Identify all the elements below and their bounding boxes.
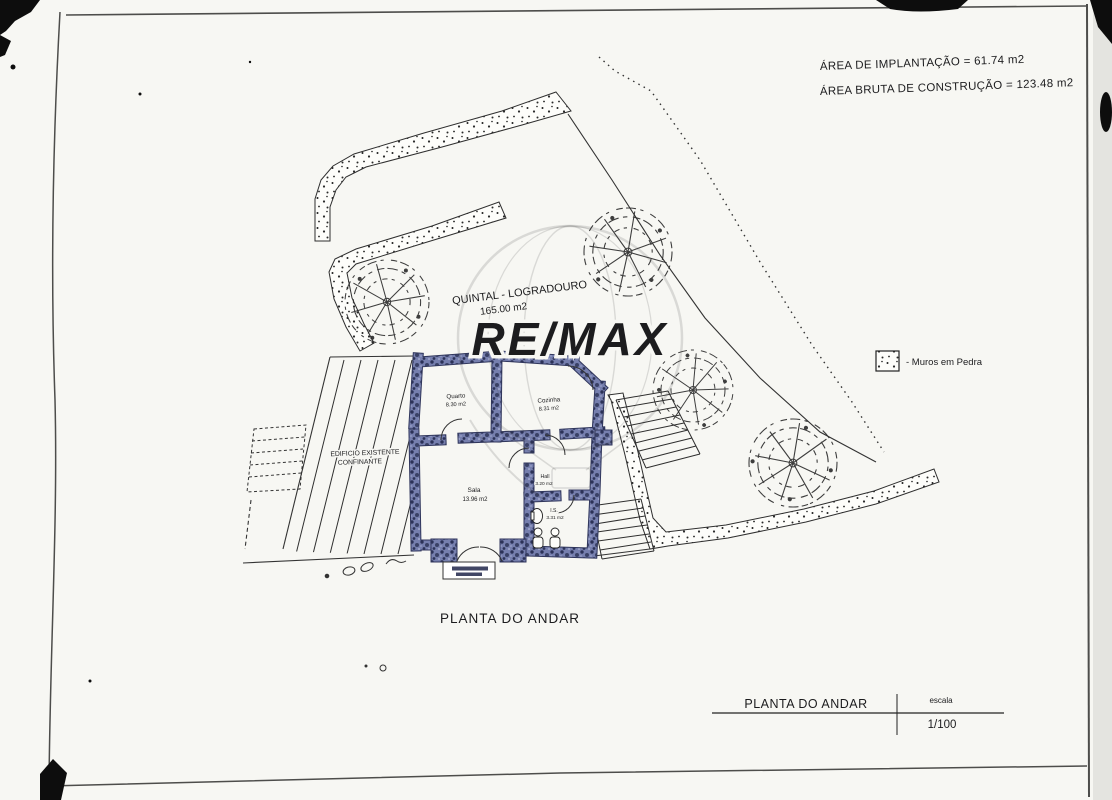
room-label-quarto: Quarto [446,392,466,400]
entrance-step [443,562,495,579]
room-label-cozinha: Cozinha [537,396,561,405]
stone-wall-swatch [876,351,899,371]
stone-wall-east [608,393,939,549]
paper-border [49,4,1089,797]
pebbles [325,560,406,671]
tree [570,194,687,311]
bathroom-fixtures [531,509,560,549]
scale-value: 1/100 [928,719,957,731]
room-area-is: 3.31 m2 [546,515,564,521]
porch-pillar-right [500,539,526,562]
area-implantacao: ÁREA DE IMPLANTAÇÃO = 61.74 m2 [820,53,1025,73]
area-construcao: ÁREA BRUTA DE CONSTRUÇÃO = 123.48 m2 [820,76,1074,98]
room-label-sala: Sala [467,487,480,494]
remax-watermark-text: RE/MAX [472,313,669,365]
bidet [551,528,559,536]
existing-building-line1: EDIFICIO EXISTENTE [330,449,400,458]
room-area-quarto: 8.30 m2 [446,401,467,408]
house-walls [414,356,612,562]
titleblock-title: PLANTA DO ANDAR [744,697,867,711]
room-area-cozinha: 8.31 m2 [539,405,560,412]
title-block: PLANTA DO ANDAR escala 1/100 [712,694,1004,735]
existing-building-line2: CONFINANTE [338,458,383,467]
stone-wall-upper [315,92,571,241]
room-area-hall: 3.20 m2 [535,481,553,487]
room-label-is: I.S. [550,508,558,514]
remax-watermark: RE/MAX [458,226,682,500]
exterior-stair-west [247,425,306,492]
room-area-sala: 13.96 m2 [462,497,488,503]
porch-pillar-left [431,539,457,562]
room-label-hall: Hall [541,474,550,480]
legend-label: - Muros em Pedra [906,357,983,368]
legend: - Muros em Pedra [876,351,983,371]
floor-plan-drawing: - Muros em Pedra ÁREA DE IMPLANTAÇÃO = 6… [0,0,1112,800]
toilet [534,528,542,536]
scale-label: escala [929,696,953,705]
drawing-caption: PLANTA DO ANDAR [440,611,580,626]
scanned-floor-plan-page: - Muros em Pedra ÁREA DE IMPLANTAÇÃO = 6… [0,0,1112,800]
